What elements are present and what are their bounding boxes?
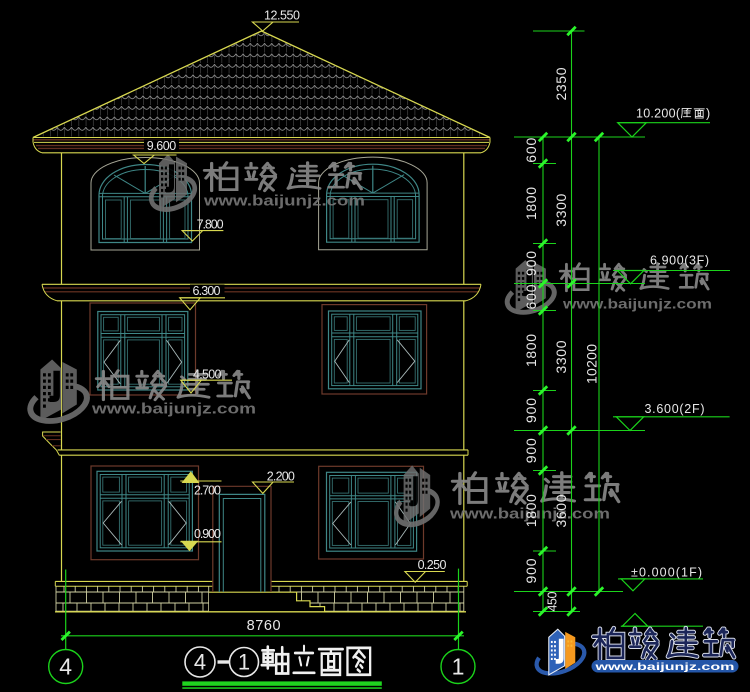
svg-text:2.700: 2.700 (194, 484, 221, 498)
svg-text:600: 600 (523, 284, 539, 309)
svg-text:www.baijunjz.com: www.baijunjz.com (562, 296, 712, 312)
svg-text:6.900(3F): 6.900(3F) (650, 254, 709, 268)
svg-text:8760: 8760 (247, 618, 281, 634)
svg-text:7.800: 7.800 (197, 218, 224, 232)
svg-text:1800: 1800 (523, 187, 539, 220)
svg-text:www.baijunjz.com: www.baijunjz.com (91, 401, 256, 418)
svg-text:0.900: 0.900 (194, 527, 221, 541)
svg-text:3300: 3300 (553, 193, 569, 226)
svg-text:www.baijunjz.com: www.baijunjz.com (594, 661, 735, 673)
svg-text:900: 900 (523, 251, 539, 276)
svg-text:6.300: 6.300 (193, 284, 221, 298)
svg-text:1: 1 (452, 654, 465, 680)
svg-text:900: 900 (523, 558, 539, 583)
svg-text:0.250: 0.250 (418, 558, 447, 572)
svg-text:600: 600 (523, 137, 539, 162)
svg-text:2.200: 2.200 (267, 469, 295, 483)
svg-text:4: 4 (59, 654, 72, 680)
svg-text:3600: 3600 (553, 494, 569, 527)
svg-text:±0.000(1F): ±0.000(1F) (631, 565, 702, 579)
svg-text:3.600(2F): 3.600(2F) (645, 402, 705, 416)
svg-text:3300: 3300 (553, 340, 569, 373)
svg-text:4.500: 4.500 (193, 367, 222, 381)
svg-text:450: 450 (546, 591, 560, 611)
svg-text:900: 900 (523, 438, 539, 463)
svg-text:900: 900 (523, 398, 539, 423)
svg-text:9.600: 9.600 (147, 139, 177, 153)
svg-text:12.550: 12.550 (264, 9, 300, 23)
svg-text:1: 1 (238, 650, 250, 675)
svg-text:4: 4 (194, 650, 206, 675)
svg-text:www.baijunjz.com: www.baijunjz.com (203, 193, 365, 210)
svg-text:1800: 1800 (523, 494, 539, 527)
svg-text:10.200(: 10.200( (636, 107, 681, 121)
svg-text:1800: 1800 (523, 334, 539, 367)
svg-text:2350: 2350 (553, 67, 569, 100)
svg-text:): ) (706, 107, 710, 121)
svg-text:10200: 10200 (584, 344, 600, 384)
